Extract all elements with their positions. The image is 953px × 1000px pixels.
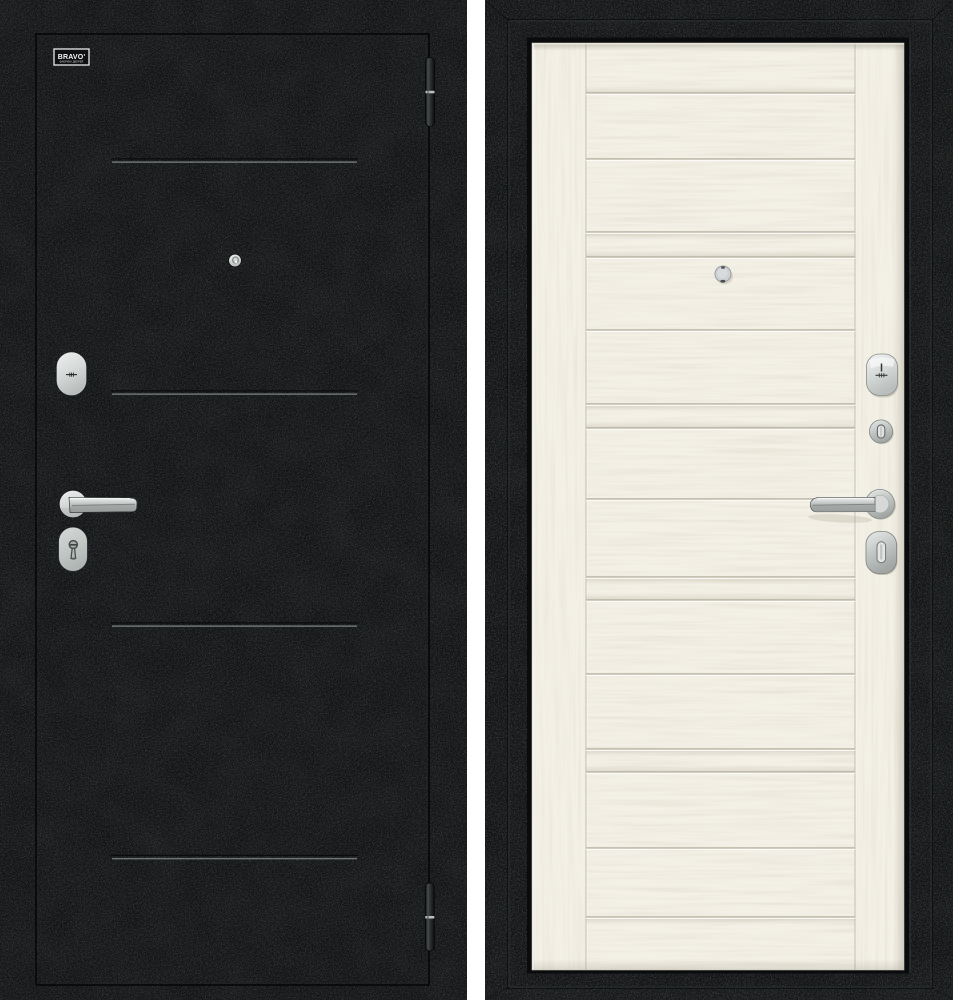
svg-text:ФАБРИКА ДВЕРЕЙ: ФАБРИКА ДВЕРЕЙ <box>60 61 84 64</box>
